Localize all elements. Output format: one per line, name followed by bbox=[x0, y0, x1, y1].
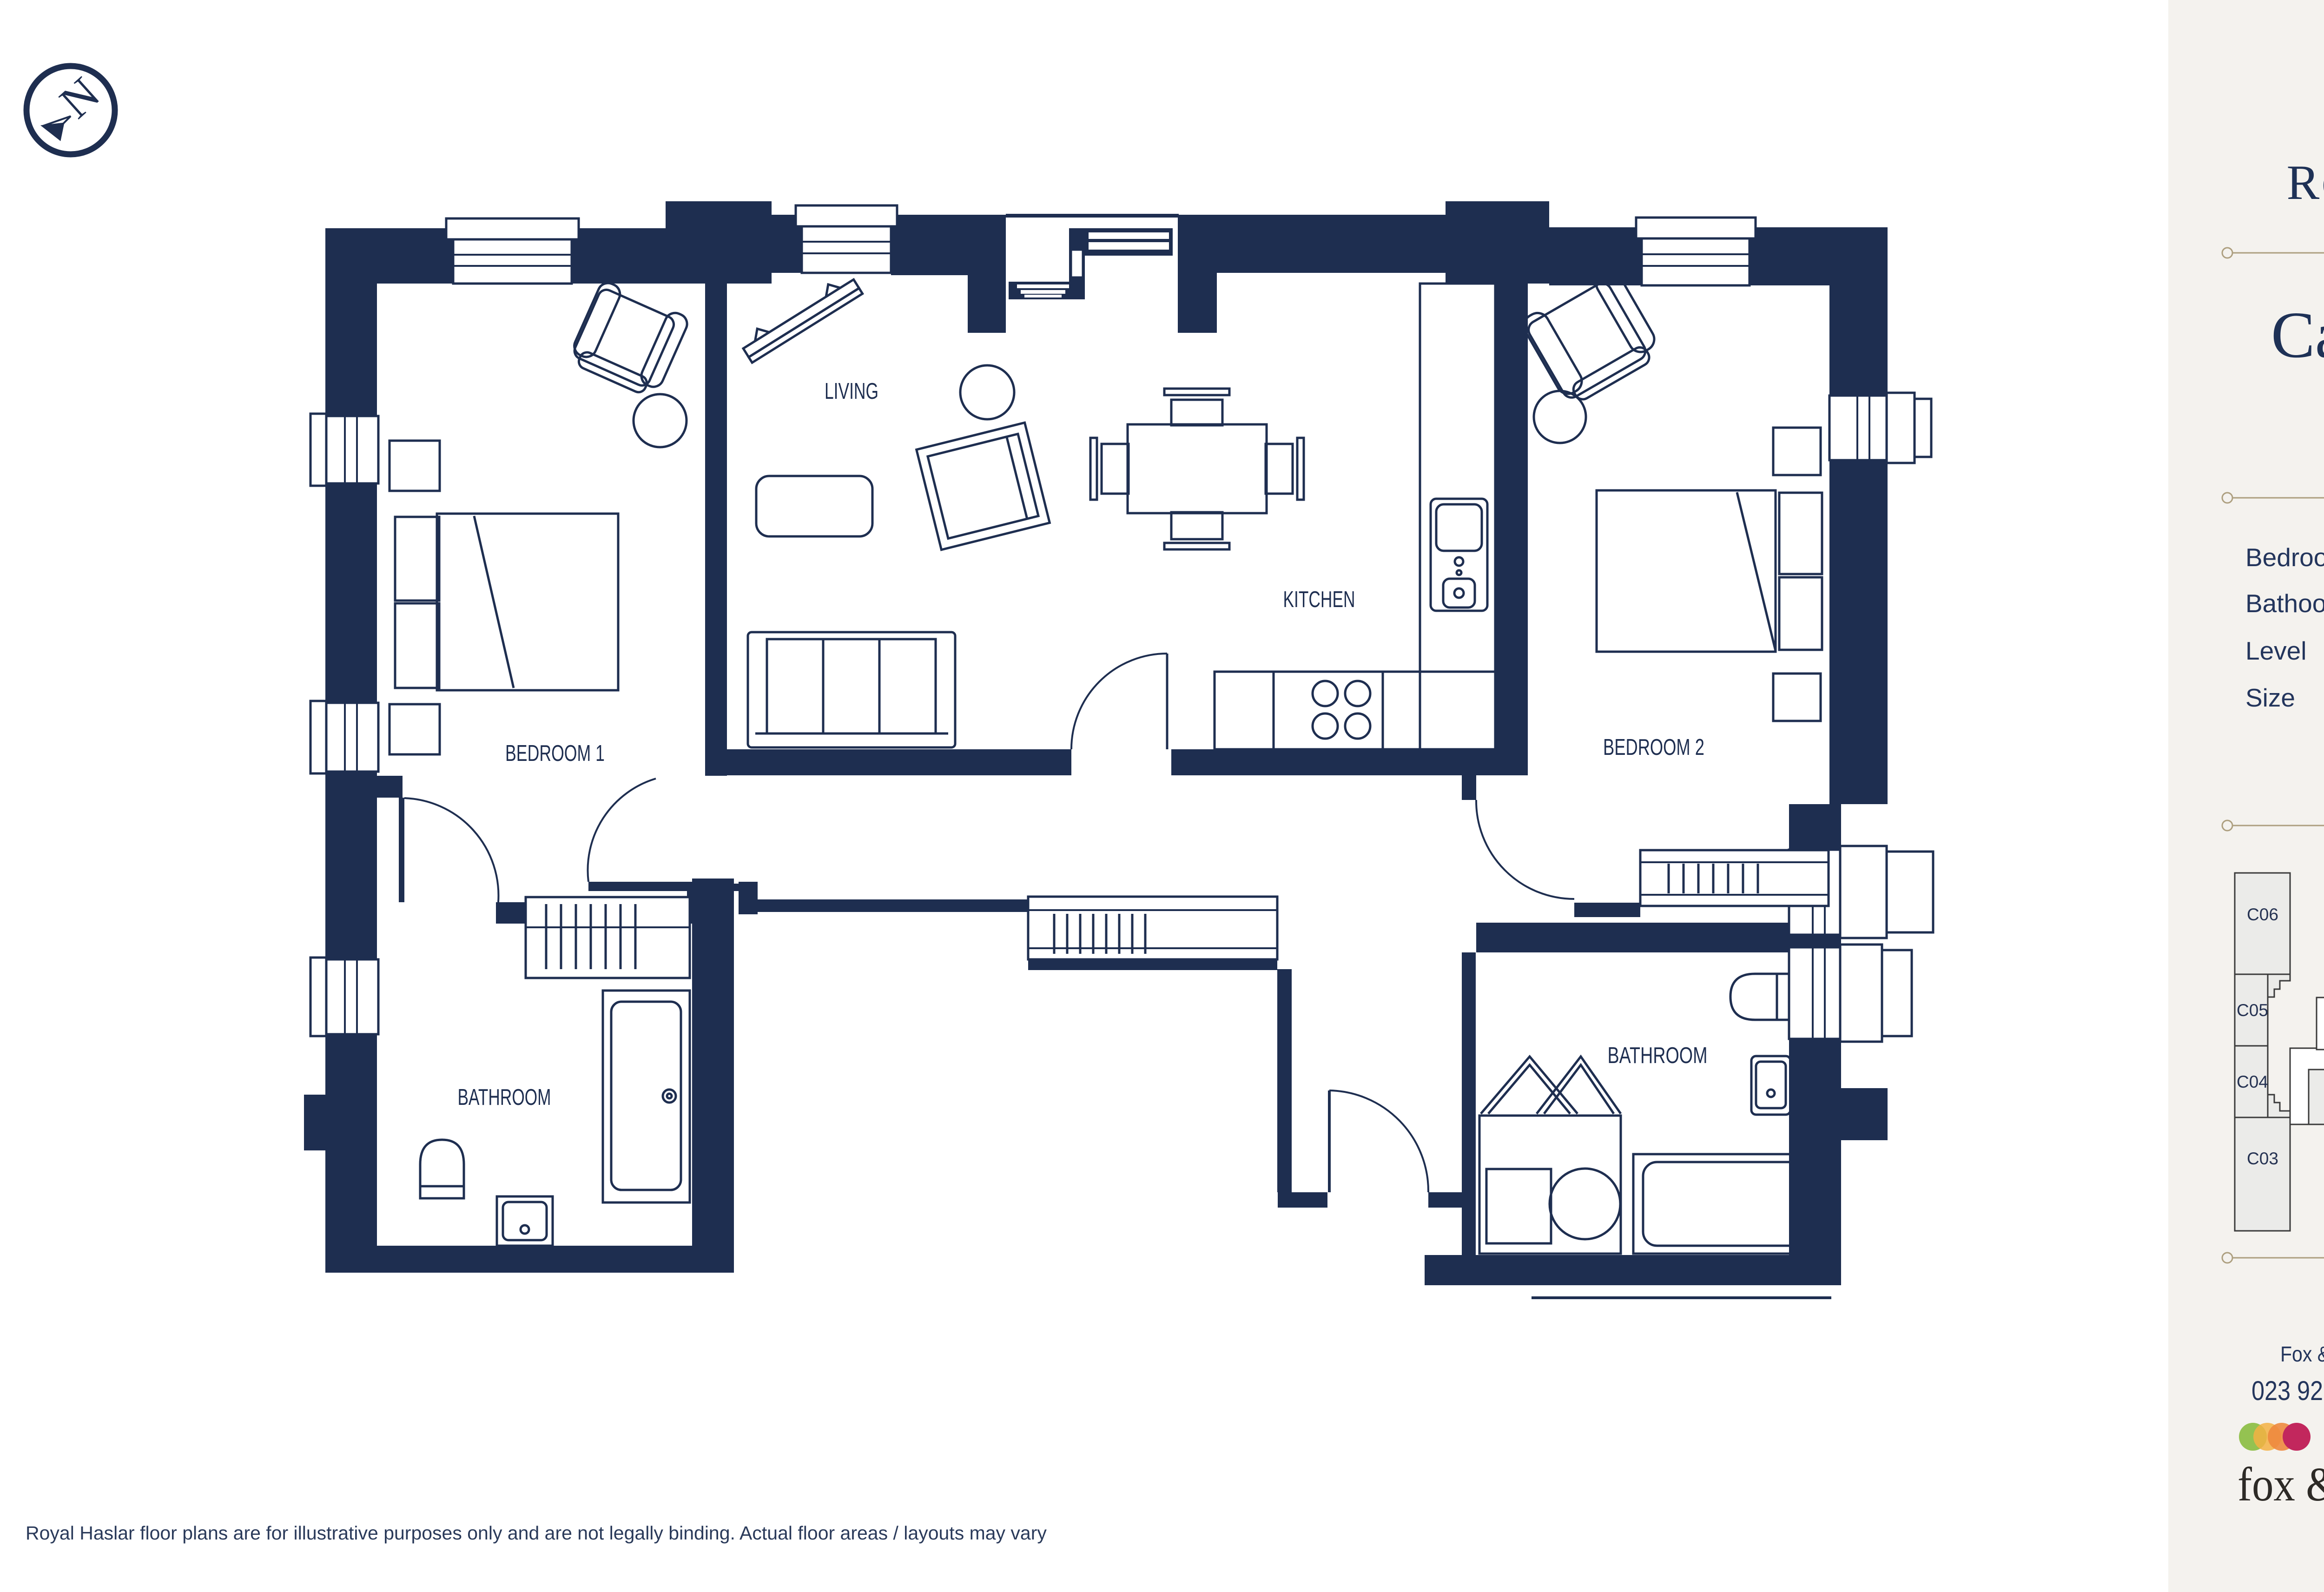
svg-text:Royal Haslar floor plans are f: Royal Haslar floor plans are for illustr… bbox=[26, 1522, 1047, 1544]
svg-text:ROYAL HASLAR: ROYAL HASLAR bbox=[2287, 155, 2324, 210]
svg-text:BATHROOM: BATHROOM bbox=[458, 1085, 551, 1110]
svg-text:C03: C03 bbox=[2247, 1149, 2278, 1168]
svg-text:C06: C06 bbox=[2247, 905, 2278, 924]
svg-text:BEDROOM 2: BEDROOM 2 bbox=[1603, 735, 1704, 760]
svg-text:Fox & Sons: Fox & Sons bbox=[2280, 1342, 2324, 1366]
svg-text:C04: C04 bbox=[2237, 1072, 2268, 1091]
svg-text:BEDROOM 1: BEDROOM 1 bbox=[505, 741, 605, 766]
svg-text:Bedrooms: Bedrooms bbox=[2245, 543, 2324, 572]
svg-text:023 9250 3733: 023 9250 3733 bbox=[2251, 1376, 2324, 1406]
svg-text:C05: C05 bbox=[2237, 1001, 2268, 1020]
svg-text:Canada House: Canada House bbox=[2271, 298, 2324, 371]
svg-text:KITCHEN: KITCHEN bbox=[1283, 587, 1355, 612]
svg-text:Bathooms: Bathooms bbox=[2245, 589, 2324, 618]
svg-text:fox & sons: fox & sons bbox=[2238, 1458, 2324, 1511]
svg-text:LIVING: LIVING bbox=[825, 379, 878, 404]
svg-text:BATHROOM: BATHROOM bbox=[1608, 1043, 1708, 1068]
svg-text:Level: Level bbox=[2245, 636, 2306, 665]
svg-text:Size: Size bbox=[2245, 683, 2295, 712]
